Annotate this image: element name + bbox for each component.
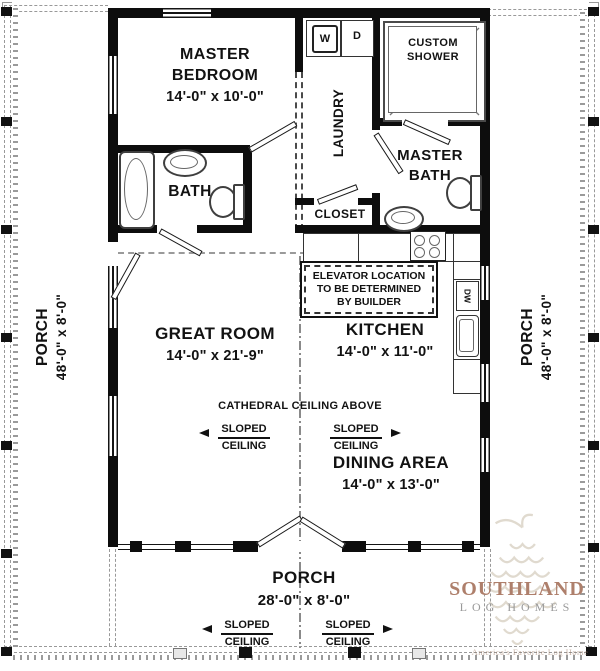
note-text: SLOPED bbox=[218, 422, 269, 439]
room-label-master-bath: MASTER BATH bbox=[384, 146, 476, 186]
room-label-bath: BATH bbox=[162, 182, 218, 202]
elevator-line3: BY BUILDER bbox=[308, 296, 430, 309]
room-name: LAUNDRY bbox=[330, 73, 348, 173]
sink-icon bbox=[384, 206, 424, 232]
elevator-note-text: ELEVATOR LOCATION TO BE DETERMINED BY BU… bbox=[304, 265, 434, 314]
room-dims: 14'-0" x 21'-9" bbox=[130, 347, 300, 366]
room-label-closet: CLOSET bbox=[312, 207, 368, 223]
room-name: SHOWER bbox=[394, 51, 472, 65]
door-opening bbox=[258, 541, 342, 552]
porch-post bbox=[1, 647, 12, 656]
burner bbox=[429, 247, 440, 258]
wall-segment bbox=[197, 225, 252, 233]
room-name: MASTER bbox=[130, 44, 300, 65]
logo-tagline: America's Favorite Log Home bbox=[462, 647, 598, 657]
burner bbox=[414, 247, 425, 258]
sink-icon bbox=[163, 149, 207, 177]
dishwasher-label: DW bbox=[463, 286, 473, 307]
window bbox=[480, 266, 490, 300]
note-text: CEILING bbox=[209, 439, 279, 453]
room-name: DINING AREA bbox=[318, 452, 464, 474]
room-dims: 14'-0" x 11'-0" bbox=[322, 343, 448, 362]
room-name: PORCH bbox=[248, 567, 360, 589]
porch-post-outline bbox=[173, 648, 187, 659]
logo-sub: LOG HOMES bbox=[438, 600, 596, 615]
porch-post bbox=[588, 117, 599, 126]
counter-divider bbox=[358, 234, 359, 261]
note-cathedral-ceiling: CATHEDRAL CEILING ABOVE bbox=[190, 400, 410, 414]
room-name: BEDROOM bbox=[130, 65, 300, 86]
kitchen-counter-right bbox=[453, 233, 482, 394]
arrow-left-icon bbox=[202, 625, 212, 633]
window bbox=[108, 396, 118, 456]
burner bbox=[414, 235, 425, 246]
bathtub-icon bbox=[119, 151, 155, 229]
room-name: CLOSET bbox=[312, 207, 368, 223]
wall-post bbox=[175, 541, 191, 552]
porch-post bbox=[1, 333, 12, 342]
counter-divider bbox=[454, 359, 481, 360]
room-dims: 14'-0" x 10'-0" bbox=[130, 88, 300, 107]
porch-post bbox=[588, 543, 599, 552]
wall-post bbox=[130, 541, 142, 552]
room-dims: 14'-0" x 13'-0" bbox=[318, 476, 464, 495]
room-dims: 48'-0" x 8'-0" bbox=[538, 281, 556, 393]
window bbox=[480, 364, 490, 402]
wall-post bbox=[233, 541, 258, 552]
room-name: BATH bbox=[162, 182, 218, 202]
room-name: PORCH bbox=[33, 281, 53, 393]
floor-plan: W D DW ELEVATOR LOCATION TO BE DETERMINE… bbox=[0, 0, 600, 671]
room-label-great-room: GREAT ROOM 14'-0" x 21'-9" bbox=[130, 323, 300, 367]
room-label-master-bedroom: MASTER BEDROOM 14'-0" x 10'-0" bbox=[130, 44, 300, 107]
arrow-left-icon bbox=[199, 429, 209, 437]
bathtub-basin bbox=[124, 158, 148, 220]
room-label-laundry: LAUNDRY bbox=[330, 73, 352, 173]
arrow-right-icon bbox=[383, 625, 393, 633]
sink-basin bbox=[459, 319, 474, 352]
kitchen-sink-icon bbox=[456, 315, 479, 357]
room-label-dining-area: DINING AREA 14'-0" x 13'-0" bbox=[318, 452, 464, 496]
room-label-kitchen: KITCHEN 14'-0" x 11'-0" bbox=[322, 319, 448, 363]
porch-post bbox=[588, 7, 599, 16]
elevator-line1: ELEVATOR LOCATION bbox=[308, 270, 430, 283]
porch-post bbox=[1, 441, 12, 450]
room-label-custom-shower: CUSTOM SHOWER bbox=[394, 37, 472, 65]
note-text: SLOPED bbox=[330, 422, 381, 439]
window bbox=[108, 56, 118, 114]
room-dims: 28'-0" x 8'-0" bbox=[248, 591, 360, 611]
bedroom-door bbox=[249, 121, 298, 153]
stove-icon bbox=[410, 231, 446, 261]
note-sloped-ceiling: SLOPED CEILING bbox=[321, 422, 391, 454]
room-name: GREAT ROOM bbox=[130, 323, 300, 345]
room-label-porch-left: PORCH 48'-0" x 8'-0" bbox=[33, 281, 77, 393]
porch-post bbox=[1, 7, 12, 16]
porch-rail-left bbox=[13, 8, 18, 648]
porch-post-outline bbox=[412, 648, 426, 659]
room-name: PORCH bbox=[518, 281, 538, 393]
room-name: MASTER bbox=[384, 146, 476, 166]
dryer-icon: D bbox=[341, 30, 373, 42]
room-name: CUSTOM bbox=[394, 37, 472, 51]
note-text: SLOPED bbox=[322, 618, 373, 635]
wall-post bbox=[408, 541, 421, 552]
porch-post bbox=[1, 117, 12, 126]
porch-edge-top-left bbox=[4, 5, 108, 12]
elevator-line2: TO BE DETERMINED bbox=[308, 283, 430, 296]
toilet-tank bbox=[233, 184, 245, 220]
porch-post bbox=[588, 225, 599, 234]
room-name: KITCHEN bbox=[322, 319, 448, 341]
note-sloped-ceiling: SLOPED CEILING bbox=[209, 422, 279, 454]
note-text: CEILING bbox=[321, 439, 391, 453]
counter-divider bbox=[454, 279, 481, 280]
washer-dryer-unit: W D bbox=[306, 20, 374, 57]
room-label-porch-front: PORCH 28'-0" x 8'-0" bbox=[248, 567, 360, 611]
porch-post bbox=[588, 333, 599, 342]
counter-divider bbox=[454, 261, 481, 262]
washer-label: W bbox=[320, 33, 330, 45]
room-dims: 48'-0" x 8'-0" bbox=[53, 281, 71, 393]
wall-post bbox=[462, 541, 474, 552]
room-name: BATH bbox=[384, 166, 476, 186]
porch-post bbox=[588, 441, 599, 450]
elevator-note: ELEVATOR LOCATION TO BE DETERMINED BY BU… bbox=[300, 261, 438, 318]
sink-basin bbox=[170, 155, 198, 169]
porch-post bbox=[1, 549, 12, 558]
note-text: CEILING bbox=[313, 635, 383, 649]
window bbox=[163, 8, 211, 18]
sink-basin bbox=[391, 211, 415, 224]
note-text: SLOPED bbox=[221, 618, 272, 635]
logo-brand: SOUTHLAND bbox=[438, 578, 596, 601]
note-sloped-ceiling: SLOPED CEILING bbox=[212, 618, 282, 650]
note-text: CEILING bbox=[212, 635, 282, 649]
room-label-porch-right: PORCH 48'-0" x 8'-0" bbox=[518, 281, 562, 393]
window bbox=[480, 438, 490, 472]
porch-edge-top-right bbox=[488, 9, 592, 16]
dishwasher-icon: DW bbox=[456, 281, 479, 311]
washer-icon: W bbox=[312, 25, 338, 53]
note-sloped-ceiling: SLOPED CEILING bbox=[313, 618, 383, 650]
porch-post bbox=[1, 225, 12, 234]
footprint-dash-left bbox=[109, 549, 116, 646]
porch-edge-right bbox=[588, 9, 595, 653]
porch-rail-right bbox=[580, 12, 585, 648]
arrow-right-icon bbox=[391, 429, 401, 437]
dryer-label: D bbox=[353, 30, 361, 42]
note-text: CATHEDRAL CEILING ABOVE bbox=[190, 400, 410, 414]
burner bbox=[429, 235, 440, 246]
